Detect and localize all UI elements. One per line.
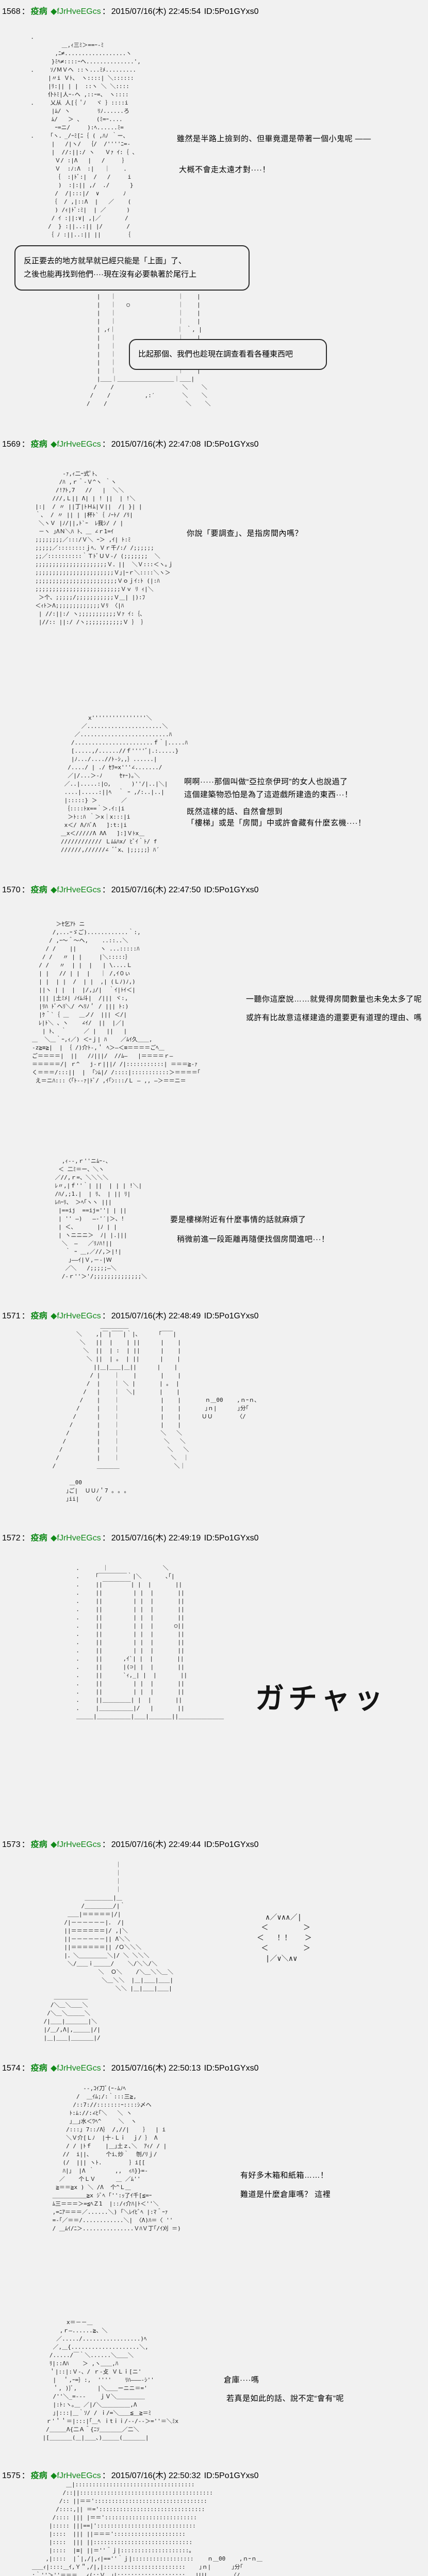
ascii-art-hallway: ＿＿＿＿＿ ＼ ,|￣|￣￣|｀|､ ｢￣￣| ＼ || | | || | | … <box>49 1322 257 1503</box>
post-datetime: 2015/07/16(木) 22:47:50 <box>111 886 201 894</box>
post-number: 1574 <box>2 2064 21 2073</box>
post-id: ID:5Po1GYxs0 <box>204 1312 259 1320</box>
surprise-burst: ∧／∨∧∧／| ＜ ＞ ＜ ！！ ＞ ＜ ＞ |／∨＼∧∨ <box>257 1912 312 1964</box>
header-separator: ： <box>22 7 30 16</box>
bubble-text: 之後也能再找到他們····現在沒有必要執著於尾行上 <box>24 268 240 281</box>
header-separator: ： <box>102 1312 110 1320</box>
poster-tripcode: ◆fJrHveEGcs <box>51 2471 101 2480</box>
header-separator: ： <box>22 1534 30 1543</box>
dialogue-line: 大概不會走太遠才對····！ <box>179 164 270 175</box>
post-id: ID:5Po1GYxs0 <box>204 1534 259 1543</box>
poster-tripcode: ◆fJrHveEGcs <box>51 1534 101 1543</box>
dialogue-line: 一聽你這麼說……就覺得房間數量也未免太多了呢 <box>246 993 422 1004</box>
header-separator: ： <box>102 7 110 16</box>
dialogue-line: 雖然是半路上撿到的、但畢竟還是帶著一個小鬼呢 —— <box>177 133 371 144</box>
post-number: 1572 <box>2 1534 21 1543</box>
poster-name: 疫病 <box>31 1840 47 1849</box>
dialogue-line: 既然這樣的話、自然會想到 <box>187 806 283 817</box>
post-number: 1571 <box>2 1312 21 1320</box>
post-datetime: 2015/07/16(木) 22:50:32 <box>111 2471 201 2480</box>
poster-name: 疫病 <box>31 2471 47 2480</box>
post-number: 1570 <box>2 886 21 894</box>
post-header: 1569：疫病 ◆fJrHveEGcs：2015/07/16(木) 22:47:… <box>2 437 260 449</box>
post-datetime: 2015/07/16(木) 22:47:08 <box>111 440 201 449</box>
post-datetime: 2015/07/16(木) 22:50:13 <box>111 2064 201 2073</box>
post-datetime: 2015/07/16(木) 22:49:44 <box>111 1840 201 1849</box>
dialogue-line: 啊啊·····那個叫做“亞拉奈伊珂”的女人也說過了 <box>184 776 348 787</box>
post-datetime: 2015/07/16(木) 22:45:54 <box>111 7 201 16</box>
ascii-art-character: ． ＿,ｨ三ﾐ＞==ｰ-ﾐ ,ﾆ≠..................ヽ }ﾐﾍ… <box>31 33 141 239</box>
header-separator: ： <box>102 2471 110 2480</box>
post-number: 1575 <box>2 2471 21 2480</box>
ascii-art-crates: ｜ ｜ ｜ ｜ ＿＿＿＿＿|＿ /＿＿＿＿＿/|｀ ＿＿|＝＝＝＝＝|/| /|… <box>40 1861 173 2042</box>
ascii-art-character: -ｧ,ｨ二ｰ式ﾟﾄ、 /ﾊ ,ｒ＾-Ｖ^ヽ ｀ヽ /!ｱﾄ,7 // | ＼＼ … <box>28 470 173 626</box>
post-number: 1568 <box>2 7 21 16</box>
header-separator: ： <box>22 1840 30 1849</box>
ascii-art-character: ,ｨ--,ｒ''ニﾑｰ-、 ＜ 二ﾐ＝ー、＼ヽ ／//,ｒ=、＼＼＼＼ ﾚ〃,|… <box>41 1157 147 1281</box>
sound-effect-text: ガチャッ <box>255 1675 387 1717</box>
post-header: 1575：疫病 ◆fJrHveEGcs：2015/07/16(木) 22:50:… <box>2 2468 260 2481</box>
poster-name: 疫病 <box>31 1534 47 1543</box>
dialogue-line: 稍微前進一段距離再隨便找個房間進吧···！ <box>177 1233 330 1244</box>
post-header: 1571：疫病 ◆fJrHveEGcs：2015/07/16(木) 22:48:… <box>2 1309 260 1321</box>
header-separator: ： <box>102 1534 110 1543</box>
post-header: 1572：疫病 ◆fJrHveEGcs：2015/07/16(木) 22:49:… <box>2 1531 260 1543</box>
ascii-art-character: ＞ｾ乞ｱﾄ ニ /,...ｰゞご)............｀:, / ,ｰ～＾～… <box>32 920 200 1085</box>
poster-tripcode: ◆fJrHveEGcs <box>51 2064 101 2073</box>
speech-bubble: 反正要去的地方就早就已經只能是「上面」了、 之後也能再找到他們····現在沒有必… <box>14 245 250 291</box>
dialogue-line: 這個建築物恐怕是為了這遊戲所建造的東西···！ <box>184 789 353 800</box>
post-id: ID:5Po1GYxs0 <box>204 7 259 16</box>
dialogue-line: 若真是如此的話、說不定“會有”呢 <box>226 2393 344 2403</box>
bubble-text: 反正要去的地方就早就已經只能是「上面」了、 <box>24 255 240 268</box>
poster-tripcode: ◆fJrHveEGcs <box>51 1840 101 1849</box>
header-separator: ： <box>102 2064 110 2073</box>
header-separator: ： <box>22 1312 30 1320</box>
post-header: 1570：疫病 ◆fJrHveEGcs：2015/07/16(木) 22:47:… <box>2 883 260 895</box>
header-separator: ： <box>22 886 30 894</box>
header-separator: ： <box>102 1840 110 1849</box>
post-id: ID:5Po1GYxs0 <box>204 886 259 894</box>
dialogue-line: 「樓梯」或是「房間」中或許會藏有什麼玄機····！ <box>187 817 366 828</box>
poster-name: 疫病 <box>31 7 47 16</box>
dialogue-line: 要是樓梯附近有什麼事情的話就麻煩了 <box>170 1214 306 1225</box>
dialogue-line: 倉庫····嗎 <box>224 2374 259 2385</box>
poster-name: 疫病 <box>31 2064 47 2073</box>
post-id: ID:5Po1GYxs0 <box>204 1840 259 1849</box>
poster-tripcode: ◆fJrHveEGcs <box>51 1312 101 1320</box>
post-header: 1568：疫病 ◆fJrHveEGcs：2015/07/16(木) 22:45:… <box>2 4 260 16</box>
header-separator: ： <box>22 2064 30 2073</box>
ascii-art-character: x''''''''''''''''＼ ／....................… <box>61 714 188 854</box>
thread-page: 1568：疫病 ◆fJrHveEGcs：2015/07/16(木) 22:45:… <box>0 0 428 2576</box>
poster-name: 疫病 <box>31 440 47 449</box>
post-header: 1574：疫病 ◆fJrHveEGcs：2015/07/16(木) 22:50:… <box>2 2061 260 2073</box>
header-separator: ： <box>102 440 110 449</box>
speech-bubble: 比起那個、我們也趁現在調查看看各種東西吧 <box>129 339 327 370</box>
header-separator: ： <box>102 886 110 894</box>
post-number: 1569 <box>2 440 21 449</box>
post-datetime: 2015/07/16(木) 22:49:19 <box>111 1534 201 1543</box>
ascii-art-door: ． ｜ ＼ ． ｢￣￣￣￣￣｀|＼ ､｢| ． ||￣￣￣￣￣| | | || … <box>76 1564 224 1721</box>
bubble-text: 比起那個、我們也趁現在調查看看各種東西吧 <box>138 348 318 361</box>
post-datetime: 2015/07/16(木) 22:48:49 <box>111 1312 201 1320</box>
poster-tripcode: ◆fJrHveEGcs <box>51 440 101 449</box>
post-number: 1573 <box>2 1840 21 1849</box>
poster-name: 疫病 <box>31 1312 47 1320</box>
ascii-art-character: x＝－－＿ ,ｒ―......≧、＼ ／...../..............… <box>39 2318 178 2442</box>
dialogue-line: 有好多木箱和紙箱……！ <box>240 2170 328 2180</box>
ascii-art-storeroom: ＿|::::::::::::::::::::::::::::::::::: /:… <box>22 2481 262 2576</box>
header-separator: ： <box>22 440 30 449</box>
post-header: 1573：疫病 ◆fJrHveEGcs：2015/07/16(木) 22:49:… <box>2 1837 260 1850</box>
ascii-art-character: --,ｺｲ刀ﾞ(ｰ-ﾑﾉﾍ / ＿ｲﾑ;/:｀:::三≧, /::7://:::… <box>49 2084 181 2233</box>
post-id: ID:5Po1GYxs0 <box>204 2471 259 2480</box>
dialogue-line: 或許有比故意這樣建造的還要更有道理的理由、嗎 <box>246 1012 422 1023</box>
poster-tripcode: ◆fJrHveEGcs <box>51 7 101 16</box>
poster-tripcode: ◆fJrHveEGcs <box>51 886 101 894</box>
post-id: ID:5Po1GYxs0 <box>204 440 259 449</box>
header-separator: ： <box>22 2471 30 2480</box>
poster-name: 疫病 <box>31 886 47 894</box>
dialogue-line: 難道是什麼倉庫嗎？ 這裡 <box>240 2189 331 2199</box>
dialogue-line: 你說「要調查」、是指房間內嗎？ <box>187 528 303 538</box>
post-id: ID:5Po1GYxs0 <box>204 2064 259 2073</box>
